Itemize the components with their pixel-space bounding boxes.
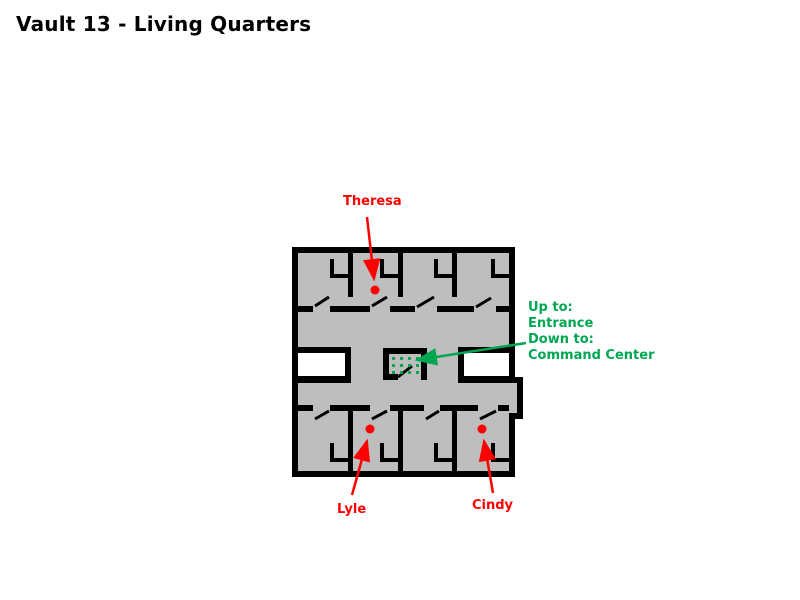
cindy-location-dot xyxy=(478,425,487,434)
resident-label-cindy: Cindy xyxy=(472,498,513,513)
stairs-note: Up to: Entrance Down to: Command Center xyxy=(528,300,654,364)
resident-label-lyle: Lyle xyxy=(337,502,366,517)
resident-label-theresa: Theresa xyxy=(343,194,402,209)
page-title: Vault 13 - Living Quarters xyxy=(16,12,311,36)
stairs-note-down-label: Down to: xyxy=(528,332,654,348)
lyle-location-dot xyxy=(366,425,375,434)
stairs-note-up-label: Up to: xyxy=(528,300,654,316)
stairs-note-down-dest: Command Center xyxy=(528,348,654,364)
left-void-room xyxy=(292,347,351,383)
theresa-location-dot xyxy=(371,286,380,295)
stairs-note-up-dest: Entrance xyxy=(528,316,654,332)
floor-plan-svg xyxy=(0,0,800,600)
